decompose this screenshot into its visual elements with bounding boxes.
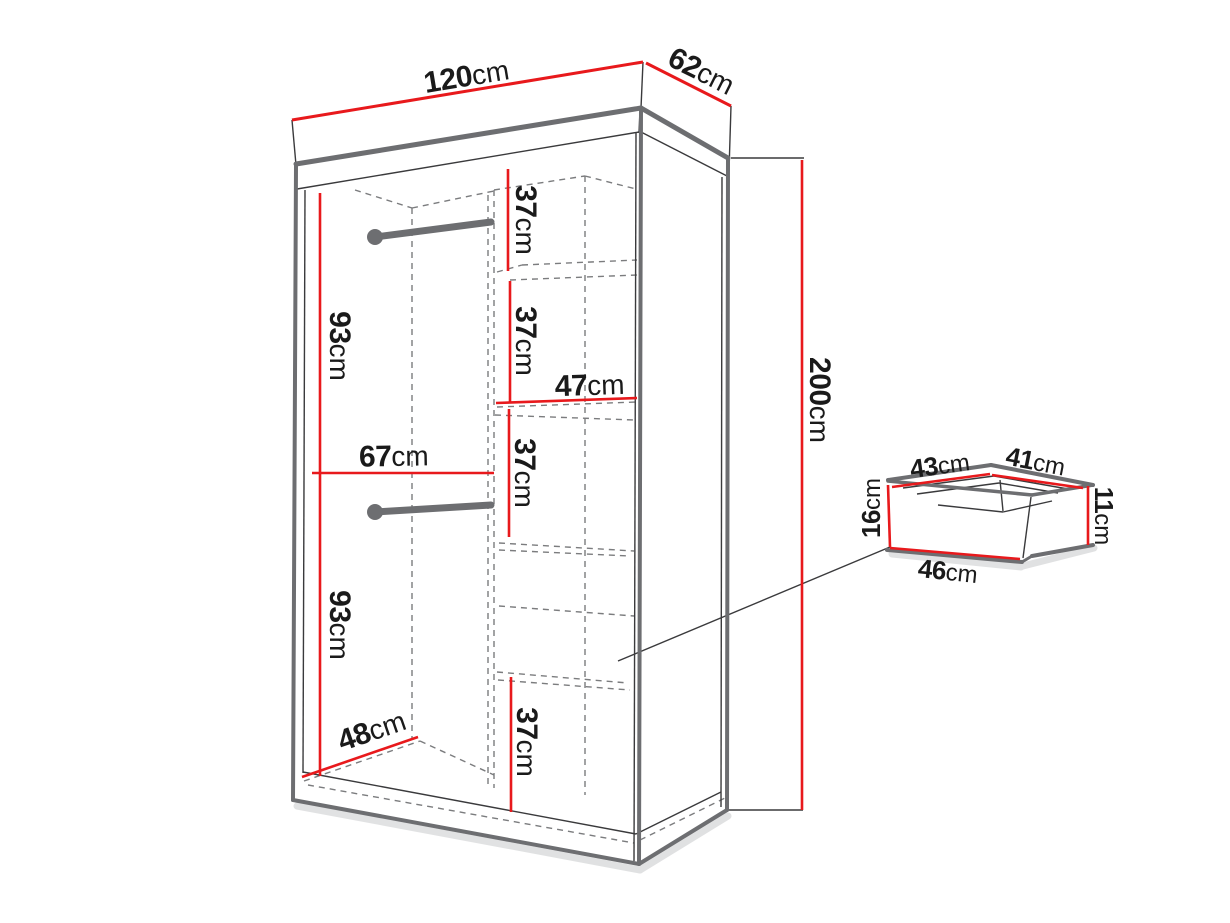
dash-ceiling-back xyxy=(412,191,494,208)
dim-label-shelf-width-47: 47cm xyxy=(554,368,625,403)
dash-shelf1-depth xyxy=(497,265,522,272)
interior-floor-front xyxy=(303,772,636,834)
dash-floor-back xyxy=(420,741,494,775)
dim-label-shelf3-37: 37cm xyxy=(508,438,541,508)
shadow-bottom-right xyxy=(640,816,728,870)
dim-label-drawer-41: 41cm xyxy=(1003,441,1068,482)
inner-near-corner xyxy=(634,133,636,861)
hanging-rod-upper xyxy=(375,222,491,237)
inner-right-wall xyxy=(721,177,722,807)
drawer-interior-bottom-r xyxy=(1003,501,1052,512)
dim-line-drawer-16 xyxy=(888,485,890,547)
drawer-interior-bottom-l xyxy=(938,505,1003,512)
dim-label-inner-depth-48: 48cm xyxy=(334,704,411,758)
slab-underside-right xyxy=(641,132,727,176)
dash-shelf3-front xyxy=(499,543,634,551)
dash-shelf1-front xyxy=(510,275,637,280)
dim-label-shelf2-37: 37cm xyxy=(509,306,542,376)
slab-right-top-edge xyxy=(641,108,728,158)
dash-ceiling-back-left xyxy=(355,190,412,208)
dash-right-ceiling-2 xyxy=(585,176,636,189)
body-left-edge xyxy=(293,166,296,800)
slab-underside-front xyxy=(297,132,639,189)
body-near-corner-edge xyxy=(639,110,641,864)
dim-label-shelf1-37: 37cm xyxy=(509,185,542,255)
dimension-lines xyxy=(292,62,1088,812)
shadow-bottom-front xyxy=(297,806,640,870)
diagram-svg: 120cm 62cm 200cm 93cm 93cm 67cm 48cm 37c… xyxy=(0,0,1230,923)
hanging-rods xyxy=(367,222,491,520)
dim-label-hanging-upper-93: 93cm xyxy=(323,311,356,381)
dim-label-drawer-16: 16cm xyxy=(856,478,886,538)
body-bottom-front-edge xyxy=(293,800,639,864)
slab-front-top-edge xyxy=(296,108,641,164)
dim-label-shelf4-37: 37cm xyxy=(510,707,543,777)
dim-label-hanging-lower-93: 93cm xyxy=(323,590,356,660)
dash-shelf2-lower xyxy=(495,415,634,420)
dash-bottom-shelf-top xyxy=(497,672,628,683)
hanging-rod-lower xyxy=(375,505,491,512)
drawer-interior-corner xyxy=(1000,480,1003,511)
slab-left-edge xyxy=(292,120,296,165)
dash-shelf1-back xyxy=(522,260,637,265)
dash-drawer-divider xyxy=(499,606,634,616)
drawer-leader-line xyxy=(618,547,890,661)
dim-label-width-120: 120cm xyxy=(421,53,511,100)
inner-left-wall xyxy=(303,190,305,773)
dim-label-height-200: 200cm xyxy=(803,357,836,443)
drawer-rim-front-left xyxy=(888,481,1032,495)
hanging-rod-lower-cap xyxy=(367,504,383,520)
hanging-rod-upper-cap xyxy=(367,229,383,245)
dim-label-drawer-11: 11cm xyxy=(1089,487,1119,546)
dim-label-depth-62: 62cm xyxy=(663,41,740,102)
wardrobe-dimension-diagram: 120cm 62cm 200cm 93cm 93cm 67cm 48cm 37c… xyxy=(0,0,1230,923)
dash-shelf3-lower xyxy=(499,550,630,556)
dim-label-inner-width-67: 67cm xyxy=(359,439,429,473)
body-right-back-edge xyxy=(727,158,728,810)
slab-apex-edge xyxy=(641,62,643,108)
